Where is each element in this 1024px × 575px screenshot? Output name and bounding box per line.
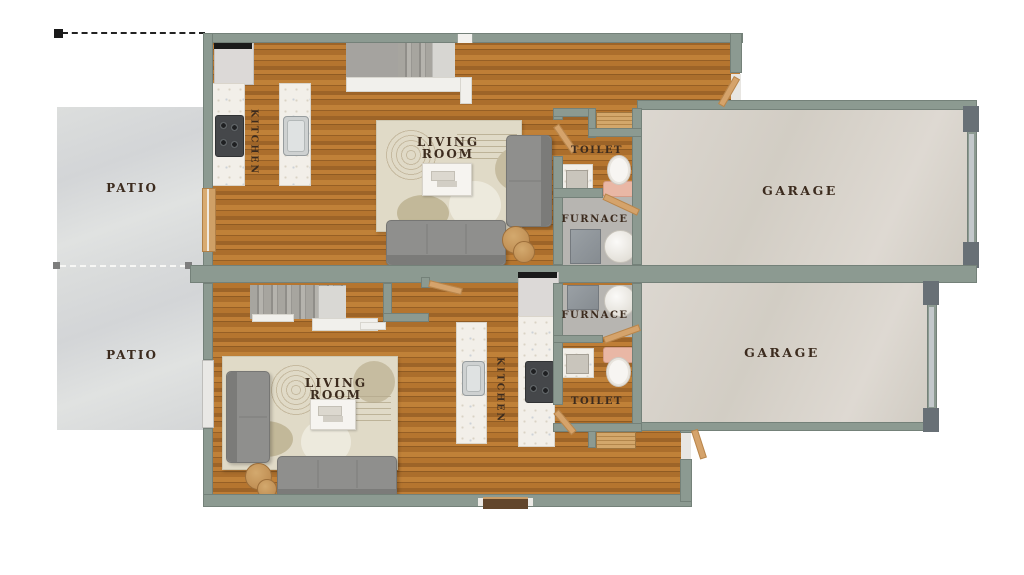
sofa-loveseat bbox=[226, 371, 270, 463]
wall bbox=[632, 283, 642, 430]
garage-door bbox=[929, 307, 934, 407]
garage-door-post bbox=[923, 281, 939, 305]
garage-entry-door bbox=[691, 429, 707, 460]
island-sink bbox=[462, 361, 485, 396]
vanity-sink bbox=[566, 170, 588, 189]
sink-basin bbox=[466, 365, 481, 392]
floor-plan-canvas: PATIO KITCHEN LIVING ROOM TOILET FURNACE… bbox=[0, 0, 1024, 575]
entry-bench bbox=[596, 432, 636, 449]
wall bbox=[553, 283, 563, 405]
living-room-label: LIVING ROOM bbox=[393, 136, 503, 160]
staircase-upper-treads bbox=[318, 286, 346, 318]
wall bbox=[588, 431, 596, 448]
garage-label: GARAGE bbox=[712, 347, 852, 360]
sink-basin bbox=[287, 120, 305, 152]
property-line-top-marker bbox=[54, 29, 63, 38]
wall bbox=[588, 128, 642, 137]
burner bbox=[230, 123, 239, 132]
stove-cooktop bbox=[215, 115, 244, 157]
stove-cooktop bbox=[525, 361, 555, 403]
wall bbox=[553, 188, 603, 198]
wall bbox=[553, 335, 603, 343]
fridge-top-edge bbox=[518, 272, 557, 278]
party-wall bbox=[190, 265, 977, 283]
property-line-middle bbox=[60, 265, 186, 267]
burner bbox=[541, 369, 550, 378]
sofa-cushion-seam bbox=[465, 224, 467, 254]
wall bbox=[730, 33, 742, 73]
sofa-cushion-seam bbox=[356, 460, 358, 488]
furnace-label: FURNACE bbox=[553, 215, 637, 225]
staircase-upper-treads bbox=[432, 43, 455, 79]
burner bbox=[529, 367, 538, 376]
sofa-cushion-seam bbox=[317, 460, 319, 488]
patio-sliding-door-unit-a bbox=[202, 188, 216, 252]
toilet-vanity bbox=[559, 348, 594, 378]
sofa-loveseat bbox=[506, 135, 552, 227]
table-book bbox=[323, 416, 343, 422]
burner bbox=[230, 140, 239, 149]
burner bbox=[541, 386, 550, 395]
fridge-top-edge bbox=[214, 43, 252, 49]
front-door-unit-a bbox=[457, 34, 473, 43]
sofa-cushion-seam bbox=[239, 416, 267, 418]
furnace-unit bbox=[567, 285, 599, 310]
patio-label: PATIO bbox=[57, 182, 207, 194]
wall bbox=[637, 422, 937, 431]
front-door-frame bbox=[478, 498, 483, 506]
table-book bbox=[431, 171, 455, 181]
vanity-sink bbox=[566, 354, 589, 374]
sofa-cushion-seam bbox=[509, 180, 541, 182]
patio-sliding-door-unit-b bbox=[202, 360, 214, 428]
wall bbox=[203, 428, 213, 502]
table-book bbox=[318, 406, 342, 416]
stair-railing bbox=[346, 77, 468, 92]
toilet-label: TOILET bbox=[558, 146, 636, 156]
stair-railing bbox=[360, 322, 386, 330]
garage-door bbox=[969, 134, 974, 244]
wall bbox=[680, 459, 692, 502]
toilet-label: TOILET bbox=[558, 397, 636, 407]
wall bbox=[637, 100, 977, 110]
side-table bbox=[513, 241, 535, 263]
garage-label: GARAGE bbox=[730, 185, 870, 198]
front-door-frame bbox=[528, 498, 533, 506]
wall bbox=[203, 33, 213, 190]
wall bbox=[203, 33, 743, 43]
burner bbox=[219, 138, 228, 147]
coffee-table bbox=[310, 399, 356, 430]
wall bbox=[553, 156, 563, 265]
property-line-middle-marker-left bbox=[53, 262, 60, 269]
sofa-cushion-seam bbox=[426, 224, 428, 254]
sofa-backrest bbox=[227, 372, 237, 462]
stair-railing bbox=[252, 314, 294, 322]
living-room-label: LIVING ROOM bbox=[276, 377, 396, 401]
coffee-table bbox=[422, 163, 472, 196]
stair-railing-end bbox=[460, 77, 472, 104]
sofa-three-seat bbox=[386, 220, 506, 266]
burner bbox=[219, 121, 228, 130]
island-sink bbox=[283, 116, 309, 156]
toilet-fixture bbox=[607, 155, 631, 185]
furnace-unit bbox=[570, 229, 601, 264]
sofa-backrest bbox=[541, 136, 551, 226]
front-door-unit-b bbox=[483, 497, 528, 509]
kitchen-label: KITCHEN bbox=[249, 106, 259, 178]
kitchen-label: KITCHEN bbox=[495, 354, 505, 426]
wall bbox=[203, 494, 692, 507]
closet-wall bbox=[383, 313, 429, 322]
patio-label: PATIO bbox=[57, 349, 207, 361]
sofa-backrest bbox=[387, 255, 505, 265]
toilet-fixture bbox=[606, 357, 631, 387]
garage-entry-door-slab bbox=[681, 433, 691, 459]
table-book bbox=[437, 181, 457, 187]
furnace-label: FURNACE bbox=[553, 311, 637, 321]
burner bbox=[529, 384, 538, 393]
garage-door-post bbox=[923, 408, 939, 432]
fridge bbox=[214, 43, 254, 85]
garage-door-post bbox=[963, 106, 979, 132]
entry-bench bbox=[596, 112, 636, 129]
property-line-top bbox=[62, 32, 205, 34]
